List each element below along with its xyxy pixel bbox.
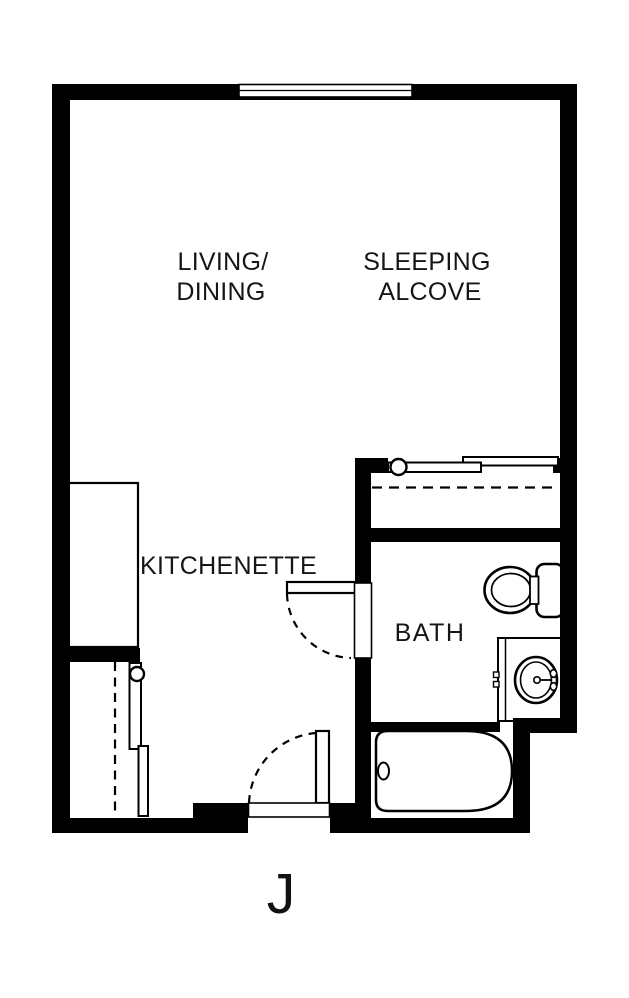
tub-outline xyxy=(376,731,512,811)
kitchenette-label: KITCHENETTE xyxy=(140,552,317,580)
wall-bottom-tub xyxy=(355,818,530,833)
toilet-tank xyxy=(537,564,564,617)
wall-entry-stub xyxy=(193,803,248,833)
wall-right xyxy=(560,84,577,733)
floor-plan: LIVING/ DINING SLEEPING ALCOVE KITCHENET… xyxy=(0,0,629,998)
wall-left xyxy=(52,84,70,833)
sliding-door-panel-back xyxy=(139,746,149,816)
entry-door-leaf xyxy=(316,731,329,803)
floor-plan-drawing: LIVING/ DINING SLEEPING ALCOVE KITCHENET… xyxy=(0,0,629,998)
wall-vanity-step xyxy=(513,718,577,733)
vanity-handle-icon xyxy=(494,672,500,678)
sleeping-alcove-label-line1: SLEEPING xyxy=(363,248,490,276)
toilet xyxy=(485,564,564,617)
kitchenette-counter xyxy=(68,483,138,647)
sleeping-alcove-label-line2: ALCOVE xyxy=(378,278,481,306)
unit-label: J xyxy=(267,862,296,926)
counter-outline xyxy=(68,483,138,647)
sink-vanity xyxy=(494,638,562,721)
sink-drain-icon xyxy=(534,677,540,683)
living-dining-label-line2: DINING xyxy=(176,278,265,306)
faucet-handle-icon xyxy=(550,670,556,678)
toilet-seat-hinge xyxy=(530,577,539,605)
entry-door-threshold xyxy=(249,803,330,817)
wall-divider-upper xyxy=(355,458,371,583)
vanity-handle-icon xyxy=(494,682,500,688)
sliding-door-pull-icon xyxy=(391,459,407,475)
wall-bottom-left xyxy=(52,818,193,833)
tub-drain-icon xyxy=(378,763,389,780)
living-dining-label-line1: LIVING/ xyxy=(177,248,268,276)
faucet-handle-icon xyxy=(550,683,556,691)
wall-kitchenette xyxy=(63,648,140,662)
bath-door-leaf xyxy=(287,582,357,593)
bath-door-jamb xyxy=(355,583,372,658)
window xyxy=(239,85,412,98)
wall-tub-right xyxy=(513,733,530,833)
wall-bath-top xyxy=(355,528,577,542)
bathtub xyxy=(370,722,512,811)
sliding-door-pull-icon xyxy=(130,667,144,681)
bath-label: BATH xyxy=(395,619,466,647)
